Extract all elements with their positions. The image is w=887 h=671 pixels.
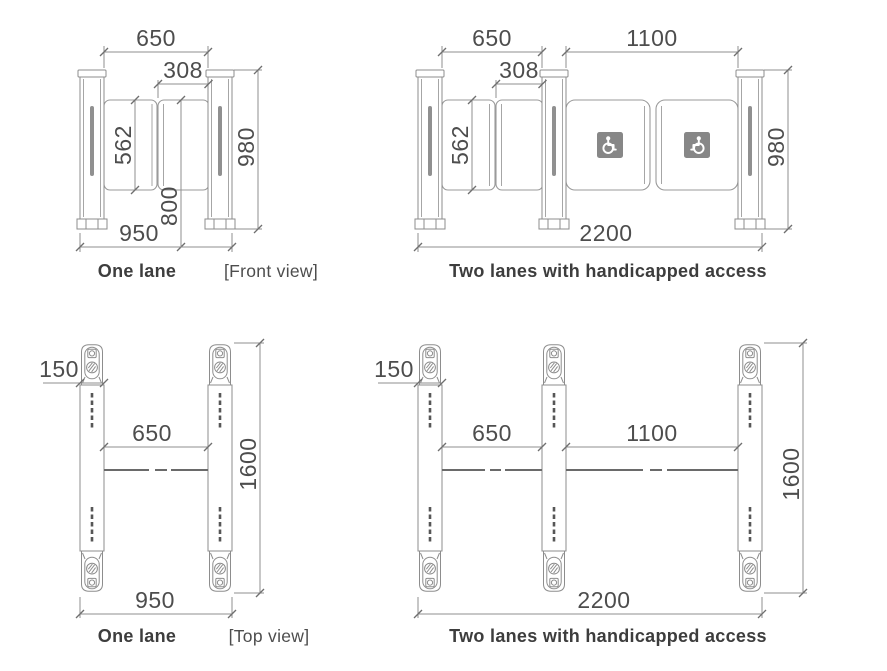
caption-top-one-lane: One lane <box>98 626 176 646</box>
dimension-lane2-width: 1100 <box>562 25 742 68</box>
dimension-cabinet-height: 980 <box>763 66 792 233</box>
top-view-label: [Top view] <box>229 626 310 646</box>
pillar-front <box>205 70 235 229</box>
swing-door-panel <box>158 100 209 190</box>
dimension-overall-width: 950 <box>76 587 236 618</box>
dimension-cabinet-length: 1600 <box>234 339 264 597</box>
wheelchair-icon <box>597 132 623 158</box>
dimension-overall-width: 2200 <box>414 220 766 252</box>
front-view-label: [Front view] <box>224 261 318 281</box>
dim-1600-label: 1600 <box>235 437 261 490</box>
caption-top-two-lanes: Two lanes with handicapped access <box>449 626 767 646</box>
dim-1600-label: 1600 <box>778 447 804 500</box>
dim-950-label: 950 <box>135 587 175 613</box>
pillar-front <box>415 70 445 229</box>
dim-950-label: 950 <box>119 220 159 246</box>
wheelchair-icon-mirrored <box>684 132 710 158</box>
dimension-cabinet-height: 980 <box>233 66 262 233</box>
dim-650-label: 650 <box>136 25 176 51</box>
dimension-lane-width: 650 <box>100 420 212 451</box>
dim-562-label: 562 <box>447 125 473 165</box>
pillar-front <box>735 70 765 229</box>
dimensional-drawing-page: 650 308 562 980 800 <box>0 0 887 671</box>
dim-650-label: 650 <box>472 420 512 446</box>
dimension-door-width: 308 <box>492 57 547 98</box>
dim-980-label: 980 <box>763 127 789 167</box>
dim-980-label: 980 <box>233 127 259 167</box>
cabinet-top <box>208 345 232 591</box>
dim-562-label: 562 <box>110 125 136 165</box>
caption-front-one-lane: One lane <box>98 261 176 281</box>
dim-308-label: 308 <box>163 57 203 83</box>
dim-150-label: 150 <box>374 356 414 382</box>
top-view-one-lane: 150 650 1600 950 <box>39 339 264 618</box>
dim-1100-label: 1100 <box>626 420 677 446</box>
dim-308-label: 308 <box>499 57 539 83</box>
dim-150-label: 150 <box>39 356 79 382</box>
pillar-front <box>539 70 569 229</box>
top-view-two-lanes: 150 650 1100 1600 2200 <box>374 339 807 618</box>
dimension-lane1-width: 650 <box>438 420 546 451</box>
dimension-cabinet-length: 1600 <box>764 339 807 597</box>
dim-650-label: 650 <box>472 25 512 51</box>
drawing-canvas: 650 308 562 980 800 <box>0 0 887 671</box>
cabinet-top <box>418 345 442 591</box>
cabinet-top <box>738 345 762 591</box>
cabinet-top <box>542 345 566 591</box>
dim-650-label: 650 <box>132 420 172 446</box>
dim-800-label: 800 <box>156 186 182 226</box>
dimension-overall-width: 2200 <box>414 587 766 618</box>
front-view-two-lanes: 650 1100 308 562 980 <box>414 25 792 252</box>
pillar-front <box>77 70 107 229</box>
dim-2200-label: 2200 <box>579 220 632 246</box>
cabinet-top <box>80 345 104 591</box>
caption-front-two-lanes: Two lanes with handicapped access <box>449 261 767 281</box>
swing-door-panel <box>496 100 543 190</box>
dimension-door-width: 308 <box>154 57 213 98</box>
dimension-lane2-width: 1100 <box>562 420 742 451</box>
front-view-one-lane: 650 308 562 980 800 <box>76 25 262 252</box>
dim-2200-label: 2200 <box>577 587 630 613</box>
dim-1100-label: 1100 <box>626 25 677 51</box>
